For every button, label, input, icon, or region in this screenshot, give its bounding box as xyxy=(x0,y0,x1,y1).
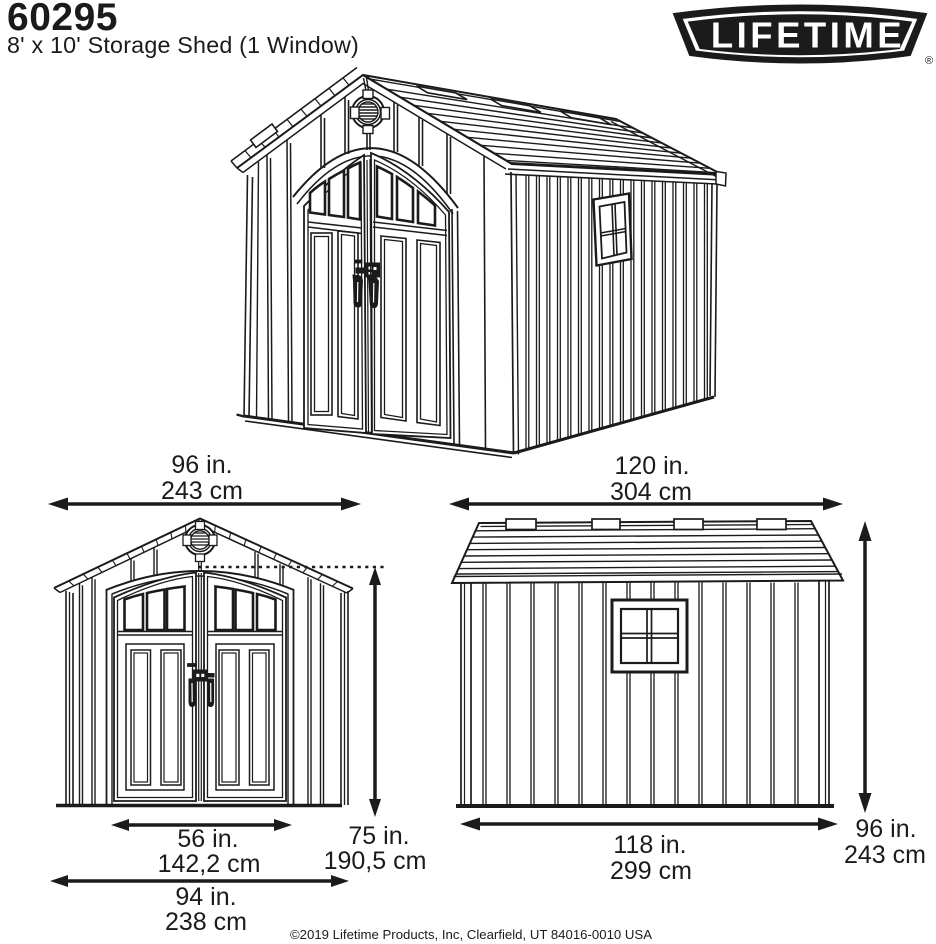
svg-text:118 in.: 118 in. xyxy=(613,831,686,859)
svg-text:142,2 cm: 142,2 cm xyxy=(158,850,261,878)
svg-text:190,5 cm: 190,5 cm xyxy=(324,847,427,875)
svg-text:LIFETIME: LIFETIME xyxy=(711,15,905,56)
svg-text:96 in.: 96 in. xyxy=(855,815,916,843)
svg-text:8' x 10' Storage Shed (1 Windo: 8' x 10' Storage Shed (1 Window) xyxy=(7,32,359,58)
svg-text:56 in.: 56 in. xyxy=(177,825,238,853)
svg-text:120 in.: 120 in. xyxy=(614,452,689,480)
svg-text:75 in.: 75 in. xyxy=(348,822,409,850)
svg-text:243 cm: 243 cm xyxy=(161,477,243,505)
svg-text:®: ® xyxy=(925,55,933,67)
svg-text:243 cm: 243 cm xyxy=(844,841,926,869)
svg-text:96 in.: 96 in. xyxy=(171,451,232,479)
svg-text:94 in.: 94 in. xyxy=(175,883,236,911)
svg-text:304 cm: 304 cm xyxy=(610,478,692,506)
svg-text:©2019 Lifetime Products, Inc,: ©2019 Lifetime Products, Inc, Clearfield… xyxy=(290,927,652,942)
svg-text:238 cm: 238 cm xyxy=(165,908,247,936)
svg-text:299 cm: 299 cm xyxy=(610,857,692,885)
